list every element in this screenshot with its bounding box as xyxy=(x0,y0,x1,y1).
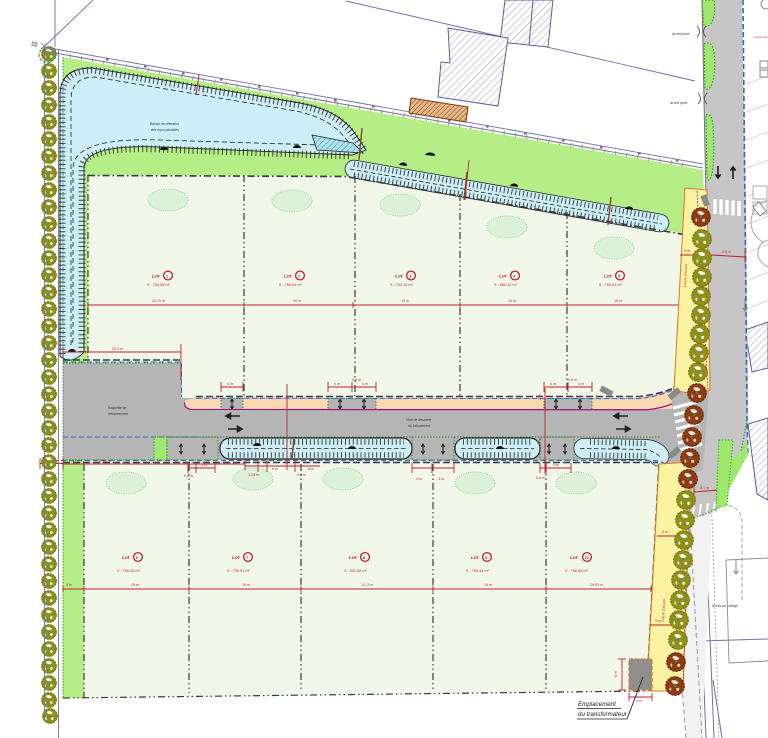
svg-text:S : 760.44 m²: S : 760.44 m² xyxy=(466,569,490,573)
svg-text:Lot: Lot xyxy=(152,274,160,280)
svg-text:24.75 m: 24.75 m xyxy=(152,299,165,303)
svg-text:4 m: 4 m xyxy=(334,382,340,386)
svg-text:Accès privé: Accès privé xyxy=(671,32,690,36)
svg-text:19.93 m: 19.93 m xyxy=(590,583,603,587)
svg-text:S : 756.25 m²: S : 756.25 m² xyxy=(117,569,141,573)
svg-text:Emplacement: Emplacement xyxy=(578,701,616,708)
svg-text:0.6 m: 0.6 m xyxy=(184,474,193,478)
svg-text:Lot: Lot xyxy=(284,274,292,280)
svg-text:4 m: 4 m xyxy=(438,477,444,481)
svg-text:S : 750.01 m²: S : 750.01 m² xyxy=(227,569,251,573)
svg-text:Lot: Lot xyxy=(349,555,357,561)
svg-text:0.6 m: 0.6 m xyxy=(297,473,306,477)
svg-text:retournement: retournement xyxy=(108,412,129,416)
svg-text:S : 754.10 m²: S : 754.10 m² xyxy=(390,283,414,287)
svg-text:1 m: 1 m xyxy=(201,463,207,467)
svg-text:Lot: Lot xyxy=(604,274,612,280)
svg-text:1.5: 1.5 xyxy=(201,87,206,93)
svg-text:Lot: Lot xyxy=(570,555,578,561)
svg-text:0.6 m: 0.6 m xyxy=(352,378,361,382)
svg-text:Accès privé: Accès privé xyxy=(753,35,768,39)
svg-text:7: 7 xyxy=(246,556,248,560)
svg-text:Lot: Lot xyxy=(499,274,507,280)
svg-text:Lot: Lot xyxy=(471,555,479,561)
svg-text:0.6 m: 0.6 m xyxy=(568,378,577,382)
svg-text:2: 2 xyxy=(298,275,300,279)
svg-text:0.6 m: 0.6 m xyxy=(536,476,545,480)
svg-text:4 m: 4 m xyxy=(553,463,559,467)
svg-text:19 m: 19 m xyxy=(614,299,622,303)
svg-text:3 m: 3 m xyxy=(684,249,690,253)
svg-text:des eaux pluviales: des eaux pluviales xyxy=(151,128,179,132)
svg-text:4 m: 4 m xyxy=(66,583,72,587)
svg-text:19 m: 19 m xyxy=(484,583,492,587)
svg-text:S : 650.42 m²: S : 650.42 m² xyxy=(494,283,518,287)
svg-text:8: 8 xyxy=(363,556,365,560)
svg-text:4 m: 4 m xyxy=(636,699,642,703)
svg-text:Lot: Lot xyxy=(122,555,130,561)
svg-text:1.25 m: 1.25 m xyxy=(248,473,259,477)
svg-text:Bassin de rétention: Bassin de rétention xyxy=(150,122,179,126)
svg-text:19 m: 19 m xyxy=(131,583,139,587)
svg-text:S : 766.55 m²: S : 766.55 m² xyxy=(565,569,589,573)
svg-text:5: 5 xyxy=(618,275,620,279)
svg-text:6 m: 6 m xyxy=(272,467,278,471)
svg-text:4 m: 4 m xyxy=(416,477,422,481)
svg-text:10: 10 xyxy=(585,556,589,560)
svg-text:9: 9 xyxy=(485,556,487,560)
svg-text:19 m: 19 m xyxy=(242,583,250,587)
svg-text:4 m: 4 m xyxy=(362,382,368,386)
svg-text:3 m: 3 m xyxy=(662,530,668,534)
svg-text:S : 753.05 m²: S : 753.05 m² xyxy=(147,283,171,287)
svg-text:22.2 m: 22.2 m xyxy=(112,347,123,351)
svg-text:6: 6 xyxy=(136,556,138,560)
svg-text:3: 3 xyxy=(409,275,411,279)
svg-text:3 m: 3 m xyxy=(655,619,661,623)
svg-text:du transformateur: du transformateur xyxy=(578,711,628,718)
svg-text:6 m: 6 m xyxy=(308,467,314,471)
svg-text:4 m: 4 m xyxy=(578,382,584,386)
svg-text:19 m: 19 m xyxy=(508,299,516,303)
svg-text:19 m: 19 m xyxy=(293,299,301,303)
svg-text:5.1 m: 5.1 m xyxy=(700,486,709,490)
svg-text:Raquette de: Raquette de xyxy=(108,406,127,410)
svg-text:4 m: 4 m xyxy=(227,382,233,386)
svg-text:5 m: 5 m xyxy=(538,438,542,444)
svg-text:19 m: 19 m xyxy=(401,299,409,303)
svg-text:S : 750.84 m²: S : 750.84 m² xyxy=(279,283,303,287)
svg-text:du lotissement: du lotissement xyxy=(408,424,431,428)
svg-text:Accès privé: Accès privé xyxy=(669,101,688,105)
svg-text:Lot: Lot xyxy=(232,555,240,561)
svg-text:21.3 m: 21.3 m xyxy=(362,583,373,587)
svg-text:Voie de desserte: Voie de desserte xyxy=(406,418,431,422)
svg-text:S : 760.61 m²: S : 760.61 m² xyxy=(599,283,623,287)
svg-text:11.05 m: 11.05 m xyxy=(98,459,111,463)
svg-text:5 m: 5 m xyxy=(614,671,618,677)
svg-text:S : 901.88 m²: S : 901.88 m² xyxy=(344,569,368,573)
svg-text:3.5 m: 3.5 m xyxy=(722,250,731,254)
svg-text:4 m: 4 m xyxy=(550,382,556,386)
svg-text:2 m: 2 m xyxy=(538,394,542,400)
svg-text:1: 1 xyxy=(166,275,168,279)
svg-text:Lot: Lot xyxy=(395,274,403,280)
